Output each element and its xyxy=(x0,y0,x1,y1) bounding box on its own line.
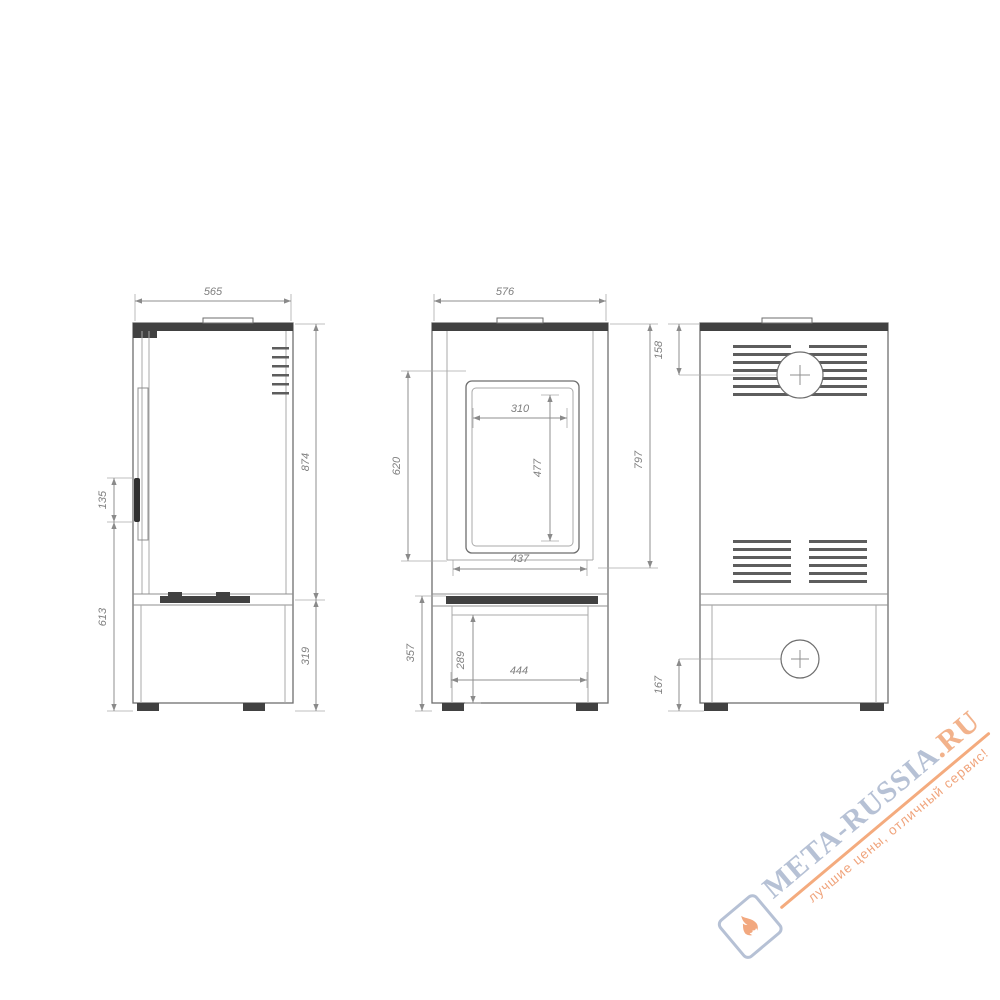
side-view-dimensions: 565 135 613 874 319 xyxy=(97,286,325,711)
back-top-notch xyxy=(762,318,812,323)
page: 565 135 613 874 319 xyxy=(0,0,1000,1000)
dim-glass-height: 477 xyxy=(532,458,544,477)
dim-body-height: 874 xyxy=(300,453,312,471)
front-view-dimensions: 576 620 310 477 797 437 357 289 xyxy=(391,286,658,711)
dim-base-height: 319 xyxy=(300,647,312,665)
side-hinge-block xyxy=(133,331,157,338)
side-foot-rear xyxy=(243,703,265,711)
back-top-band xyxy=(700,323,888,331)
dim-handle-to-floor: 613 xyxy=(97,607,109,626)
dim-drawer-width: 444 xyxy=(510,665,528,677)
dim-body-right-height: 797 xyxy=(633,450,645,469)
side-body-outline xyxy=(133,323,293,703)
back-view-dimensions: 158 167 xyxy=(653,324,704,711)
dim-door-span: 620 xyxy=(391,456,403,475)
dim-glass-width: 310 xyxy=(511,403,530,415)
front-top-band xyxy=(432,323,608,331)
front-foot-right xyxy=(576,703,598,711)
side-view xyxy=(133,318,293,711)
dim-handle-length: 135 xyxy=(97,490,109,509)
dim-flue-from-top: 158 xyxy=(653,340,665,359)
back-foot-left xyxy=(704,703,728,711)
front-body-outline xyxy=(432,323,608,703)
dim-door-width: 437 xyxy=(511,553,530,565)
dim-side-width: 565 xyxy=(204,286,223,298)
dim-front-width: 576 xyxy=(496,286,515,298)
back-foot-right xyxy=(860,703,884,711)
side-foot-front xyxy=(137,703,159,711)
back-lower-vent-grille xyxy=(733,540,867,583)
side-top-band xyxy=(133,323,293,331)
dim-base-front-height: 357 xyxy=(405,643,417,662)
front-top-notch xyxy=(497,318,543,323)
dim-drawer-height: 289 xyxy=(455,651,467,670)
back-view xyxy=(679,318,888,711)
front-hearth-plate xyxy=(446,596,598,604)
front-foot-left xyxy=(442,703,464,711)
door-handle xyxy=(134,478,140,522)
side-top-notch xyxy=(203,318,253,323)
dim-outlet-from-floor: 167 xyxy=(653,675,665,694)
